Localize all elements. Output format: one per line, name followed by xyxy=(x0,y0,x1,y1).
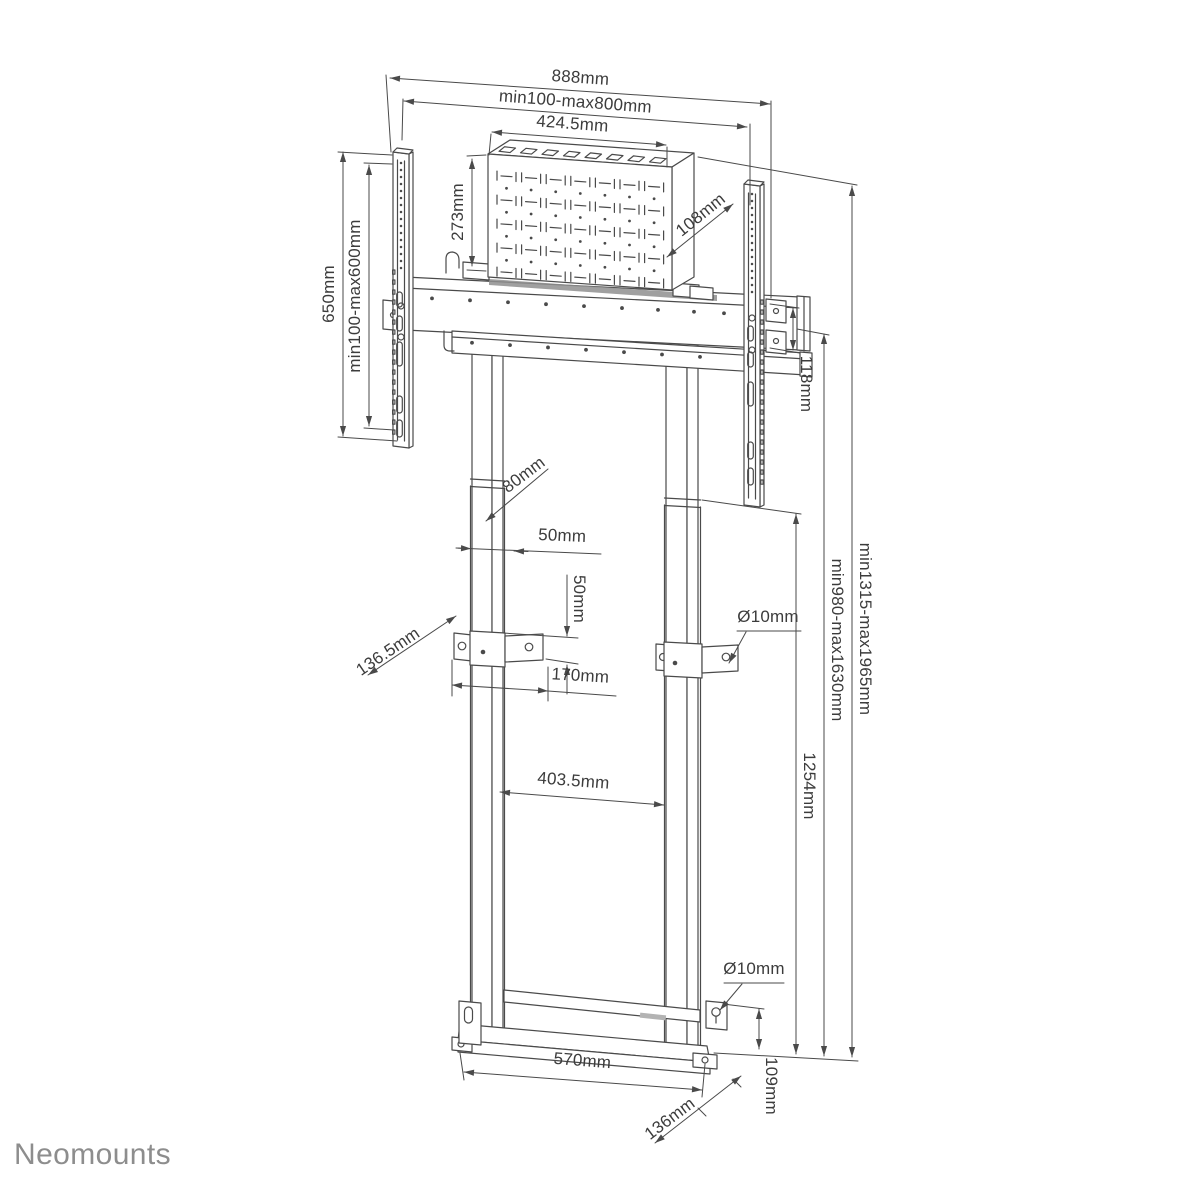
rail-hole-dot xyxy=(400,190,403,193)
right-rail-beam-bolt xyxy=(749,315,755,321)
box-slot-dash xyxy=(649,186,660,187)
right-tv-rail xyxy=(744,180,764,507)
box-slot-dash xyxy=(624,185,635,186)
beam-bolt xyxy=(722,311,726,315)
dim-screen-height-range: min980-max1630mm xyxy=(797,329,847,1056)
dim-base-hole-offset: 109mm xyxy=(723,1004,781,1115)
dim-bracket-hole-diameter-label: Ø10mm xyxy=(737,607,798,626)
box-slot-dash xyxy=(575,253,586,254)
box-slot-dash xyxy=(649,210,660,211)
right-bracket-right-ear xyxy=(702,645,738,673)
box-slot-dash xyxy=(599,255,610,256)
rail-hole-dot xyxy=(751,249,754,252)
box-perforation-dot xyxy=(579,192,582,195)
beam-bolt xyxy=(544,302,548,306)
box-slot-dash xyxy=(575,277,586,278)
dim-width-overall-label: 888mm xyxy=(551,66,610,89)
left-tv-rail xyxy=(393,148,413,448)
box-slot-dash xyxy=(550,251,561,252)
rail-hole-dot xyxy=(400,176,403,179)
rail-hole-dot xyxy=(400,204,403,207)
dim-bracket-hole-diameter: Ø10mm xyxy=(729,607,801,663)
box-slot-dash xyxy=(575,205,586,206)
right-wall-bracket xyxy=(656,642,738,678)
box-slot-dash xyxy=(550,227,561,228)
rail-hole-dot xyxy=(751,242,754,245)
box-perforation-dot xyxy=(628,244,631,247)
rail-hole-dot xyxy=(400,211,403,214)
left-wall-bracket xyxy=(454,631,543,667)
box-slot-dash xyxy=(501,224,512,225)
box-slot-dash xyxy=(575,229,586,230)
dim-base-width-label: 570mm xyxy=(553,1049,612,1072)
rail-hole-dot xyxy=(751,214,754,217)
product-technical-drawing: 888mm min100-max800mm 424.5mm 273mm 650m… xyxy=(0,0,1200,1200)
rail-hole-dot xyxy=(751,200,754,203)
box-slot-dash xyxy=(599,231,610,232)
box-perforation-dot xyxy=(505,187,508,190)
right-column xyxy=(665,346,701,1050)
rail-hole-dot xyxy=(751,284,754,287)
rail-hole-dot xyxy=(751,228,754,231)
box-perforation-dot xyxy=(604,194,607,197)
box-slot-dash xyxy=(649,234,660,235)
box-slot-dash xyxy=(599,183,610,184)
box-perforation-dot xyxy=(554,238,557,241)
box-perforation-dot xyxy=(505,211,508,214)
rail-hole-dot xyxy=(400,197,403,200)
dim-box-height-label: 273mm xyxy=(448,183,467,241)
box-perforation-dot xyxy=(604,266,607,269)
rail-hole-dot xyxy=(400,253,403,256)
right-bracket-bolt xyxy=(673,661,678,666)
left-bracket-left-ear xyxy=(454,633,472,661)
box-perforation-dot xyxy=(554,190,557,193)
rail-hole-dot xyxy=(751,235,754,238)
box-slot-dash xyxy=(624,281,635,282)
dim-box-height: 273mm xyxy=(448,155,486,271)
box-perforation-dot xyxy=(554,214,557,217)
dim-rail-height-label: 650mm xyxy=(319,265,338,323)
left-rail-beam-bolt xyxy=(398,334,404,340)
rail-hole-dot xyxy=(751,277,754,280)
dim-bracket-depth: 136.5mm xyxy=(353,616,456,680)
box-perforation-dot xyxy=(530,213,533,216)
dim-base-hole-offset-label: 109mm xyxy=(762,1057,781,1115)
box-perforation-dot xyxy=(579,264,582,267)
box-slot-dash xyxy=(624,257,635,258)
dim-vesa-height-range-label: min100-max600mm xyxy=(345,219,364,372)
beam-bolt xyxy=(508,343,512,347)
rail-hole-dot xyxy=(400,267,403,270)
rail-hole-dot xyxy=(400,162,403,165)
rail-hole-dot xyxy=(751,270,754,273)
box-perforation-dot xyxy=(628,220,631,223)
box-slot-dash xyxy=(575,181,586,182)
box-slot-dash xyxy=(501,200,512,201)
box-perforation-dot xyxy=(579,216,582,219)
dim-bracket-depth-label: 136.5mm xyxy=(353,623,424,679)
dim-bracket-hole-spacing-label: 170mm xyxy=(551,664,610,686)
right-column-side-face xyxy=(687,346,698,1050)
box-perforation-dot xyxy=(505,235,508,238)
dim-inner-clearance-label: 403.5mm xyxy=(537,768,611,792)
box-slot-dash xyxy=(599,279,610,280)
dim-column-width-label: 50mm xyxy=(538,525,587,546)
left-bracket-clamp xyxy=(470,631,505,667)
box-perforation-dot xyxy=(554,262,557,265)
left-bracket-right-ear xyxy=(505,634,543,662)
box-perforation-dot xyxy=(653,221,656,224)
beam-bolt xyxy=(546,346,550,350)
dim-screen-height-range-label: min980-max1630mm xyxy=(828,559,847,722)
dim-beam-height-label: 118mm xyxy=(797,356,816,412)
box-perforation-dot xyxy=(653,269,656,272)
rail-hole-dot xyxy=(400,232,403,235)
right-column-front-face xyxy=(666,346,687,1050)
rail-hole-dot xyxy=(400,183,403,186)
box-perforation-dot xyxy=(604,218,607,221)
box-slot-dash xyxy=(624,233,635,234)
beam-bolt xyxy=(584,348,588,352)
beam-bolt xyxy=(430,296,434,300)
box-perforation-dot xyxy=(653,197,656,200)
box-perforation-dot xyxy=(604,242,607,245)
box-slot-dash xyxy=(526,226,537,227)
rail-hole-dot xyxy=(751,221,754,224)
rail-hole-dot xyxy=(751,193,754,196)
rail-hole-dot xyxy=(751,207,754,210)
dim-total-height-range-label: min1315-max1965mm xyxy=(856,543,875,716)
cable-hook-top xyxy=(446,252,459,273)
beam-bolt xyxy=(620,306,624,310)
left-column-front-face xyxy=(472,322,492,1042)
right-bracket-clamp xyxy=(664,642,702,678)
beam-bolt xyxy=(656,308,660,312)
dim-vesa-height-range: min100-max600mm xyxy=(345,163,394,430)
box-slot-dash xyxy=(501,176,512,177)
box-perforation-dot xyxy=(530,189,533,192)
beam-bolt xyxy=(660,353,664,357)
box-slot-dash xyxy=(649,282,660,283)
box-right-foot-outer xyxy=(690,286,713,300)
beam-bolt xyxy=(622,350,626,354)
box-slot-dash xyxy=(550,275,561,276)
box-perforation-dot xyxy=(530,237,533,240)
rail-hole-dot xyxy=(751,256,754,259)
left-column-side-face xyxy=(492,322,503,1042)
box-slot-dash xyxy=(526,202,537,203)
box-slot-dash xyxy=(526,178,537,179)
dim-base-depth-label: 136mm xyxy=(641,1094,699,1144)
rail-hole-dot xyxy=(400,260,403,263)
box-slot-dash xyxy=(599,207,610,208)
box-perforation-dot xyxy=(653,245,656,248)
dim-inner-clearance: 403.5mm xyxy=(500,768,664,805)
rail-hole-dot xyxy=(400,218,403,221)
dim-bracket-height-label: 50mm xyxy=(570,575,589,623)
rail-hole-dot xyxy=(751,291,754,294)
box-slot-dash xyxy=(550,179,561,180)
box-slot-dash xyxy=(501,272,512,273)
box-slot-dash xyxy=(526,250,537,251)
dim-box-width-label: 424.5mm xyxy=(536,111,609,135)
box-slot-dash xyxy=(501,248,512,249)
left-bracket-bolt xyxy=(481,650,486,655)
box-perforation-dot xyxy=(505,259,508,262)
dim-lift-height-label: 1254mm xyxy=(800,752,819,819)
box-perforation-dot xyxy=(579,240,582,243)
brand-logo: Neomounts xyxy=(14,1138,171,1171)
drawing-canvas: 888mm min100-max800mm 424.5mm 273mm 650m… xyxy=(0,0,1200,1200)
rail-hole-dot xyxy=(400,169,403,172)
box-perforation-dot xyxy=(628,196,631,199)
motor-box xyxy=(488,140,694,290)
box-slot-dash xyxy=(550,203,561,204)
beam-bolt xyxy=(692,310,696,314)
rail-hole-dot xyxy=(400,239,403,242)
rail-hole-dot xyxy=(400,246,403,249)
rail-hole-dot xyxy=(751,263,754,266)
beam-bolt xyxy=(506,300,510,304)
box-slot-dash xyxy=(526,274,537,275)
box-slot-dash xyxy=(624,209,635,210)
left-column xyxy=(471,322,505,1042)
dim-base-hole-diameter-label: Ø10mm xyxy=(723,959,784,978)
box-perforation-dot xyxy=(628,268,631,271)
dim-base-hole-diameter: Ø10mm xyxy=(720,959,785,1010)
beam-bolt xyxy=(468,298,472,302)
beam-bolt xyxy=(698,355,702,359)
beam-bolt xyxy=(582,304,586,308)
rail-mount-plate xyxy=(766,299,786,323)
box-slot-dash xyxy=(649,258,660,259)
beam-bolt xyxy=(470,341,474,345)
rail-hole-dot xyxy=(400,225,403,228)
box-perforation-dot xyxy=(530,261,533,264)
